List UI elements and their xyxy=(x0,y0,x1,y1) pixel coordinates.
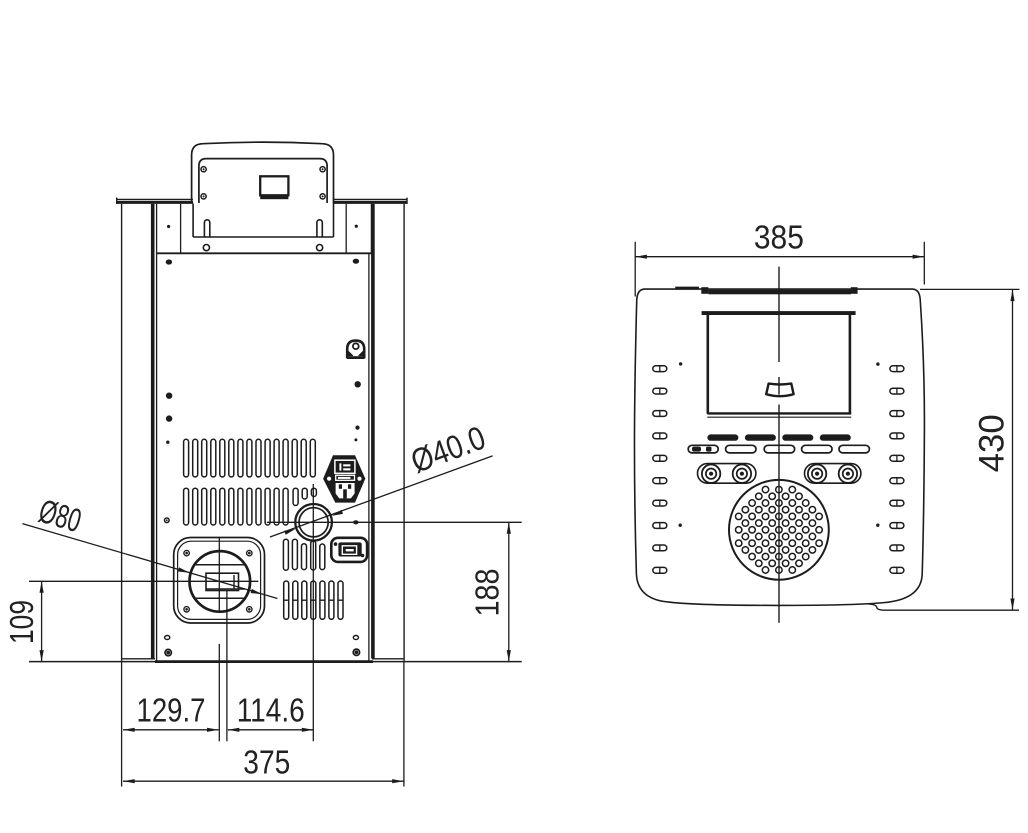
svg-text:114.6: 114.6 xyxy=(237,692,305,729)
svg-text:129.7: 129.7 xyxy=(137,692,206,729)
svg-text:109: 109 xyxy=(3,600,40,644)
svg-text:375: 375 xyxy=(243,744,290,781)
svg-text:188: 188 xyxy=(469,569,506,617)
svg-text:430: 430 xyxy=(973,414,1012,472)
svg-text:385: 385 xyxy=(754,218,804,255)
